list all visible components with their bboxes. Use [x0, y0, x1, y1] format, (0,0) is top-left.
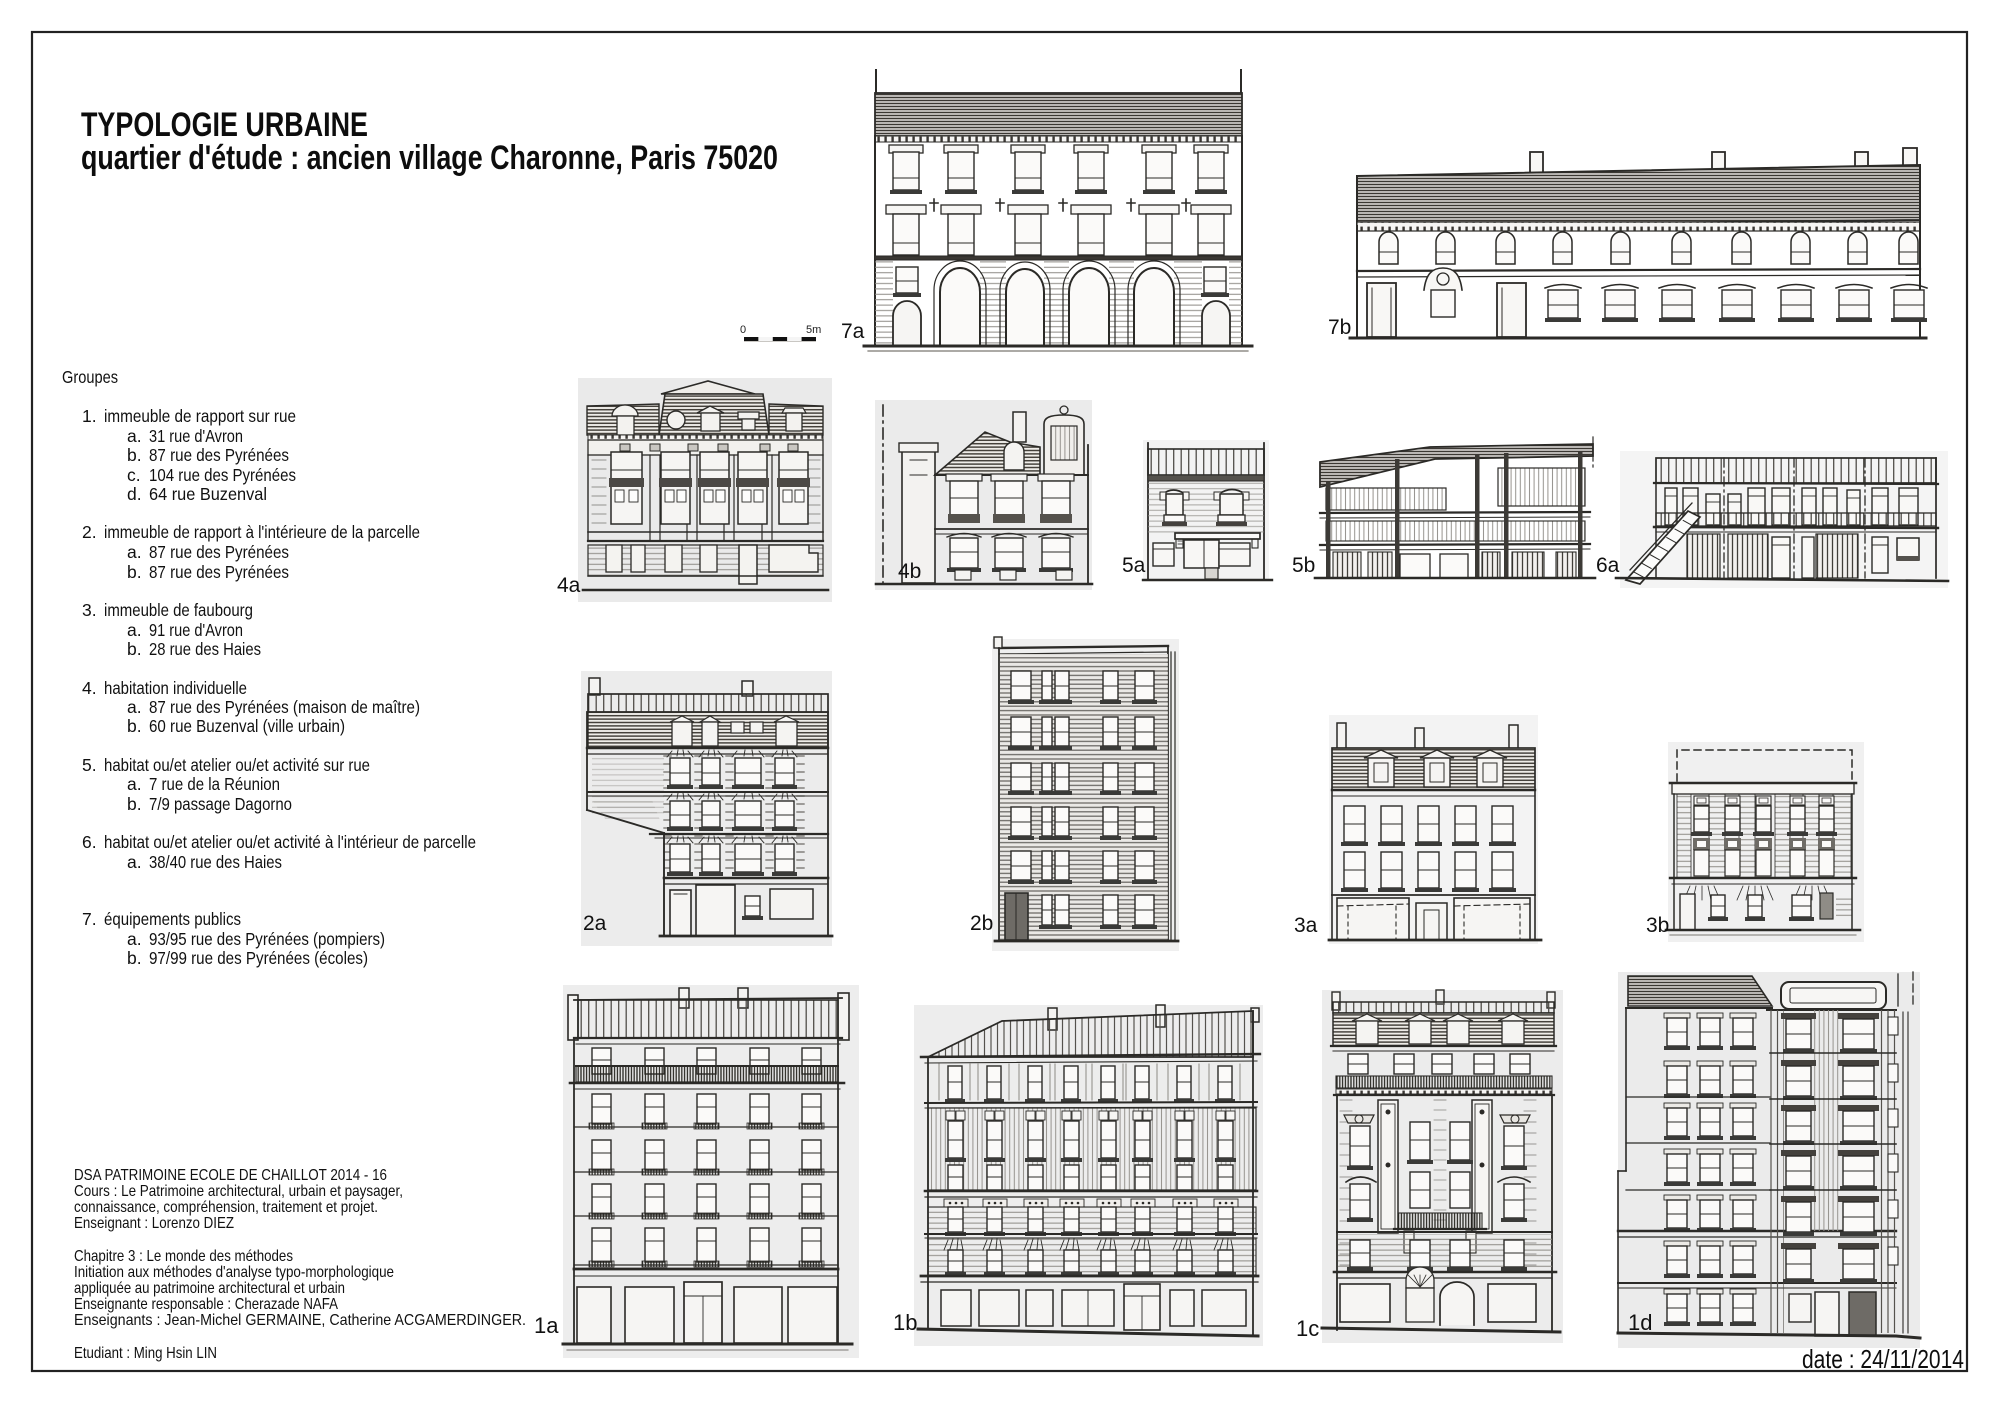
svg-text:Etudiant : Ming Hsin LIN: Etudiant : Ming Hsin LIN [74, 1345, 217, 1362]
svg-text:87 rue des Pyrénées (maison de: 87 rue des Pyrénées (maison de maître) [149, 697, 420, 717]
svg-text:b.: b. [127, 794, 142, 814]
svg-text:87 rue des Pyrénées: 87 rue des Pyrénées [149, 542, 289, 562]
svg-text:Enseignante responsable : Cher: Enseignante responsable : Cherazade NAFA [74, 1296, 338, 1313]
svg-text:b.: b. [127, 562, 142, 582]
svg-text:d.: d. [127, 484, 142, 504]
svg-text:Initiation aux méthodes d'anal: Initiation aux méthodes d'analyse typo-m… [74, 1264, 394, 1281]
svg-text:quartier d'étude : ancien vill: quartier d'étude : ancien village Charon… [81, 139, 778, 177]
svg-text:équipements publics: équipements publics [104, 909, 241, 929]
svg-text:b.: b. [127, 948, 142, 968]
svg-text:93/95 rue des Pyrénées (pompie: 93/95 rue des Pyrénées (pompiers) [149, 929, 385, 949]
svg-text:0: 0 [740, 324, 746, 336]
svg-text:97/99 rue des Pyrénées (écoles: 97/99 rue des Pyrénées (écoles) [149, 948, 368, 968]
svg-text:a.: a. [127, 620, 142, 640]
svg-text:2.: 2. [82, 522, 97, 542]
svg-text:appliquée au patrimoine archit: appliquée au patrimoine architectural et… [74, 1280, 345, 1297]
svg-text:6.: 6. [82, 832, 97, 852]
svg-text:immeuble de rapport à l'intéri: immeuble de rapport à l'intérieure de la… [104, 522, 420, 542]
svg-text:5.: 5. [82, 755, 97, 775]
svg-text:2b: 2b [970, 912, 993, 935]
svg-text:4b: 4b [898, 560, 921, 583]
svg-text:2a: 2a [583, 912, 607, 935]
svg-text:7.: 7. [82, 909, 97, 929]
svg-text:7/9 passage Dagorno: 7/9 passage Dagorno [149, 794, 292, 814]
svg-text:habitation individuelle: habitation individuelle [104, 678, 247, 698]
svg-text:91 rue d'Avron: 91 rue d'Avron [149, 620, 243, 640]
svg-text:4.: 4. [82, 678, 97, 698]
svg-text:6a: 6a [1596, 554, 1620, 577]
svg-text:4a: 4a [557, 574, 581, 597]
svg-text:Cours : Le Patrimoine architec: Cours : Le Patrimoine architectural, urb… [74, 1183, 403, 1200]
svg-text:habitat ou/et atelier ou/et ac: habitat ou/et atelier ou/et activité à l… [104, 832, 476, 852]
svg-text:1b: 1b [893, 1310, 917, 1335]
svg-text:3.: 3. [82, 600, 97, 620]
svg-text:a.: a. [127, 929, 142, 949]
svg-text:connaissance, compréhension, t: connaissance, compréhension, traitement … [74, 1199, 378, 1216]
svg-text:Chapitre 3 : Le monde des méth: Chapitre 3 : Le monde des méthodes [74, 1248, 293, 1265]
svg-text:1a: 1a [534, 1313, 559, 1338]
svg-text:87 rue des Pyrénées: 87 rue des Pyrénées [149, 445, 289, 465]
svg-text:38/40 rue des Haies: 38/40 rue des Haies [149, 852, 282, 872]
svg-text:1d: 1d [1628, 1310, 1652, 1335]
svg-text:a.: a. [127, 774, 142, 794]
svg-text:5b: 5b [1292, 554, 1315, 577]
svg-text:Enseignant : Lorenzo DIEZ: Enseignant : Lorenzo DIEZ [74, 1215, 234, 1232]
svg-text:3a: 3a [1294, 914, 1318, 937]
svg-text:7a: 7a [841, 320, 865, 343]
svg-text:1c: 1c [1296, 1316, 1319, 1341]
svg-text:c.: c. [127, 465, 141, 485]
svg-text:a.: a. [127, 852, 142, 872]
svg-text:3b: 3b [1646, 914, 1669, 937]
svg-text:b.: b. [127, 445, 142, 465]
svg-text:31 rue d'Avron: 31 rue d'Avron [149, 426, 243, 446]
svg-text:DSA PATRIMOINE ECOLE DE CHAILL: DSA PATRIMOINE ECOLE DE CHAILLOT 2014 - … [74, 1167, 387, 1184]
svg-text:a.: a. [127, 697, 142, 717]
svg-text:Groupes: Groupes [62, 367, 118, 387]
svg-text:immeuble de rapport sur rue: immeuble de rapport sur rue [104, 406, 296, 426]
svg-text:5m: 5m [806, 324, 821, 336]
svg-text:64 rue Buzenval: 64 rue Buzenval [149, 484, 267, 504]
svg-text:7 rue de la Réunion: 7 rue de la Réunion [149, 774, 280, 794]
svg-text:date : 24/11/2014: date : 24/11/2014 [1802, 1344, 1964, 1374]
svg-text:104 rue des Pyrénées: 104 rue des Pyrénées [149, 465, 296, 485]
svg-text:a.: a. [127, 542, 142, 562]
svg-text:60 rue Buzenval (ville urbain): 60 rue Buzenval (ville urbain) [149, 716, 345, 736]
svg-text:Enseignants : Jean-Michel GERM: Enseignants : Jean-Michel GERMAINE, Cath… [74, 1312, 526, 1329]
svg-text:a.: a. [127, 426, 142, 446]
svg-text:b.: b. [127, 639, 142, 659]
svg-text:b.: b. [127, 716, 142, 736]
svg-text:habitat ou/et atelier ou/et ac: habitat ou/et atelier ou/et activité sur… [104, 755, 370, 775]
svg-text:immeuble de faubourg: immeuble de faubourg [104, 600, 253, 620]
svg-text:1.: 1. [82, 406, 97, 426]
svg-text:28 rue des Haies: 28 rue des Haies [149, 639, 261, 659]
svg-text:5a: 5a [1122, 554, 1146, 577]
svg-text:87 rue des Pyrénées: 87 rue des Pyrénées [149, 562, 289, 582]
svg-text:7b: 7b [1328, 316, 1351, 339]
